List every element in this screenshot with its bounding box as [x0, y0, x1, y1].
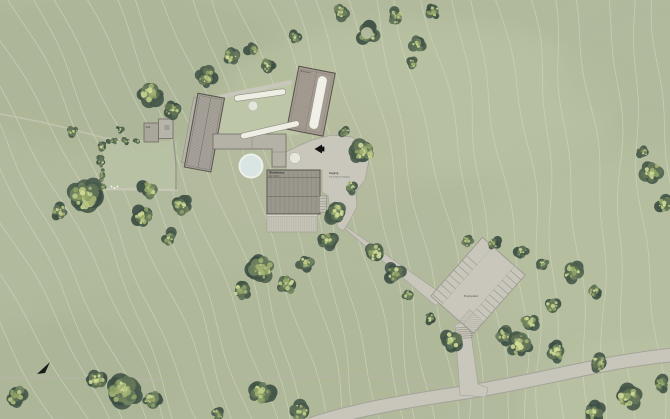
garden-bench-dot: [117, 186, 119, 188]
tree-blob: [429, 13, 432, 16]
tree-blob: [128, 140, 130, 142]
tree-blob: [252, 47, 255, 50]
tree-blob: [10, 390, 13, 393]
tree-blob: [322, 235, 325, 238]
tree-blob: [590, 291, 592, 293]
tree-blob: [577, 270, 580, 273]
tree-blob: [570, 275, 573, 278]
tree-blob: [304, 259, 307, 262]
tree-blob: [152, 89, 155, 92]
tree-blob: [11, 400, 15, 404]
tree-blob: [112, 141, 113, 142]
tree-blob: [408, 293, 411, 296]
tree-blob: [73, 187, 79, 193]
tree-blob: [259, 389, 264, 394]
tree-blob: [138, 142, 139, 143]
tree-blob: [592, 410, 596, 414]
tree-blob: [151, 404, 155, 408]
tree-blob: [453, 337, 456, 340]
tree-blob: [514, 338, 517, 341]
tree-blob: [501, 331, 505, 335]
stable-label: Stall: [146, 126, 151, 129]
tree-blob: [662, 201, 666, 205]
tree-blob: [602, 366, 604, 368]
tree-blob: [644, 149, 646, 151]
tree-blob: [221, 416, 222, 417]
tree-blob: [296, 415, 299, 418]
tree-blob: [141, 215, 145, 219]
tree-blob: [519, 254, 520, 255]
tree-blob: [351, 185, 354, 188]
tree-blob: [326, 234, 330, 238]
tree-blob: [394, 16, 396, 18]
tree-blob: [115, 139, 116, 140]
tree-blob: [553, 307, 557, 311]
tree-blob: [555, 305, 557, 307]
tree-blob: [652, 175, 654, 177]
tree-blob: [555, 301, 558, 304]
tree-blob: [511, 344, 516, 349]
tree-blob: [258, 258, 263, 263]
tree-blob: [15, 393, 20, 398]
tree-blob: [570, 268, 573, 271]
tree-blob: [102, 148, 104, 150]
tree-blob: [59, 212, 63, 216]
tree-blob: [495, 245, 497, 247]
tree-blob: [113, 139, 115, 141]
tree-blob: [97, 379, 99, 381]
tree-blob: [254, 388, 259, 393]
tree-blob: [393, 13, 395, 15]
tree-blob: [553, 346, 555, 348]
house-label-title: Wohnhaus: [269, 171, 285, 175]
tree-blob: [57, 208, 59, 210]
tree-blob: [363, 146, 367, 150]
site-plan-svg: Scheune Stall: [0, 0, 670, 419]
tree-blob: [329, 241, 331, 243]
tree-blob: [101, 147, 103, 149]
tree-blob: [308, 262, 310, 264]
tree-blob: [207, 78, 211, 82]
tree-blob: [166, 235, 167, 236]
tree-blob: [346, 130, 347, 131]
tree-blob: [266, 390, 269, 393]
tree-blob: [119, 129, 121, 131]
tree-blob: [119, 125, 120, 126]
tree-blob: [234, 292, 237, 295]
tree-blob: [396, 21, 398, 23]
tree-blob: [100, 164, 103, 167]
tree-blob: [144, 400, 146, 402]
tree-blob: [137, 140, 138, 141]
tree-blob: [59, 209, 61, 211]
tree-blob: [303, 412, 307, 416]
tree-blob: [411, 293, 413, 295]
pool-circle: [241, 156, 262, 177]
tree-blob: [114, 397, 119, 402]
tree-blob: [542, 263, 545, 266]
tree-blob: [103, 162, 104, 163]
tree-blob: [618, 393, 624, 399]
tree-blob: [296, 405, 298, 407]
tree-blob: [489, 243, 491, 245]
tree-blob: [172, 109, 174, 111]
tree-blob: [146, 97, 152, 103]
tree-blob: [341, 7, 343, 9]
tree-blob: [659, 205, 661, 207]
tree-blob: [264, 68, 266, 70]
tree-blob: [395, 15, 397, 17]
tree-blob: [147, 192, 150, 195]
tree-blob: [259, 264, 261, 266]
tree-blob: [238, 289, 241, 292]
tree-blob: [359, 156, 361, 158]
tree-blob: [642, 152, 644, 154]
tree-blob: [432, 318, 434, 320]
tree-blob: [80, 190, 85, 195]
tree-blob: [267, 65, 269, 67]
tree-blob: [98, 161, 100, 163]
tree-blob: [116, 141, 117, 142]
tree-blob: [255, 270, 257, 272]
tree-blob: [407, 290, 408, 291]
tree-blob: [294, 34, 297, 37]
tree-blob: [657, 379, 660, 382]
tree-blob: [395, 271, 399, 275]
tree-blob: [216, 411, 218, 413]
tree-blob: [166, 111, 168, 113]
tree-blob: [109, 386, 116, 393]
tree-blob: [628, 401, 631, 404]
site-plan-canvas: Scheune Stall: [0, 0, 670, 419]
tree-blob: [598, 367, 601, 370]
tree-blob: [229, 52, 231, 54]
tree-blob: [85, 196, 91, 202]
tree-blob: [170, 238, 172, 240]
tree-blob: [300, 411, 302, 413]
tree-blob: [517, 253, 521, 257]
tree-blob: [464, 240, 466, 242]
tree-blob: [145, 89, 148, 92]
tree-blob: [659, 386, 661, 388]
tree-blob: [94, 375, 97, 378]
tree-blob: [447, 339, 452, 344]
tree-blob: [306, 265, 308, 267]
tree-blob: [642, 151, 643, 152]
house-terrace-decking: [267, 216, 317, 232]
tree-blob: [601, 359, 603, 361]
tree-blob: [431, 6, 434, 9]
tree-blob: [165, 239, 169, 243]
tree-blob: [416, 43, 418, 45]
entry-label-line1: Zugang: [329, 171, 339, 175]
tree-blob: [556, 347, 560, 351]
tree-blob: [503, 335, 505, 337]
tree-blob: [412, 60, 415, 63]
tree-blob: [243, 286, 247, 290]
tree-blob: [411, 63, 413, 65]
garden-bench-dot: [114, 187, 116, 189]
tree-blob: [655, 164, 659, 168]
tree-blob: [410, 66, 412, 68]
tree-blob: [371, 257, 374, 260]
tree-blob: [199, 78, 201, 80]
tree-blob: [175, 204, 179, 208]
tree-blob: [325, 238, 328, 241]
tree-blob: [593, 358, 596, 361]
tree-blob: [429, 317, 431, 319]
tree-blob: [183, 207, 185, 209]
tree-blob: [329, 238, 332, 241]
tree-blob: [104, 188, 106, 190]
tree-blob: [555, 352, 559, 356]
tree-blob: [433, 10, 436, 13]
tree-blob: [660, 379, 663, 382]
tree-blob: [300, 405, 303, 408]
tree-blob: [53, 210, 56, 213]
tree-blob: [661, 206, 664, 209]
garden-bench-dot: [111, 186, 113, 188]
tree-blob: [520, 339, 523, 342]
tree-blob: [359, 150, 363, 154]
tree-blob: [144, 208, 148, 212]
tree-blob: [520, 335, 522, 337]
tree-blob: [59, 216, 61, 218]
tree-blob: [102, 175, 103, 176]
tree-blob: [172, 112, 177, 117]
tree-blob: [285, 286, 290, 291]
tree-blob: [367, 144, 373, 150]
tree-blob: [371, 37, 374, 40]
tree-blob: [278, 282, 282, 286]
tree-blob: [519, 343, 522, 346]
tree-blob: [102, 180, 103, 181]
tree-blob: [493, 242, 495, 244]
tree-blob: [61, 206, 64, 209]
tree-blob: [431, 314, 433, 316]
tree-blob: [542, 262, 543, 263]
tree-blob: [99, 383, 101, 385]
tree-blob: [559, 345, 561, 347]
tree-blob: [70, 132, 72, 134]
tree-blob: [339, 7, 342, 10]
tree-blob: [544, 259, 546, 261]
tree-blob: [121, 391, 124, 394]
tree-blob: [593, 290, 595, 292]
tree-blob: [76, 130, 77, 131]
tree-blob: [296, 410, 300, 414]
tree-blob: [379, 256, 381, 258]
tree-blob: [98, 374, 101, 377]
tree-blob: [101, 186, 103, 188]
tree-blob: [213, 417, 214, 418]
tree-blob: [102, 145, 104, 147]
tree-blob: [99, 178, 104, 183]
tree-blob: [126, 141, 127, 142]
tree-ring-hole: [361, 27, 373, 39]
tree-blob: [235, 56, 237, 58]
tree-blob: [521, 254, 525, 258]
parking-label: Parkplatz: [464, 294, 479, 298]
tree-blob: [292, 33, 294, 35]
tree-blob: [135, 215, 138, 218]
tree-blob: [598, 361, 601, 364]
tree-blob: [596, 292, 597, 293]
tree-blob: [397, 16, 400, 19]
tree-blob: [266, 70, 268, 72]
tree-blob: [145, 188, 149, 192]
tree-blob: [374, 250, 378, 254]
tree-blob: [99, 172, 101, 174]
tree-blob: [168, 233, 171, 236]
tree-blob: [120, 382, 123, 385]
tree-blob: [499, 336, 502, 339]
tree-blob: [333, 209, 337, 213]
tree-blob: [595, 287, 597, 289]
tree-blob: [243, 290, 247, 294]
tree-blob: [169, 236, 170, 237]
tree-blob: [88, 187, 92, 191]
tree-blob: [591, 293, 594, 296]
house-label-sub: EG ±0.00: [269, 176, 279, 178]
entrance-arrow-base: [322, 147, 325, 152]
tree-blob: [142, 92, 148, 98]
tree-blob: [355, 150, 359, 154]
tree-blob: [588, 409, 592, 413]
tree-blob: [466, 240, 469, 243]
tree-blob: [102, 163, 103, 164]
tree-blob: [153, 397, 155, 399]
tree-blob: [348, 184, 350, 186]
tree-blob: [292, 37, 294, 39]
tree-blob: [175, 109, 178, 112]
tree-blob: [550, 351, 553, 354]
tree-blob: [124, 140, 126, 142]
tree-blob: [345, 132, 348, 135]
tree-blob: [631, 392, 635, 396]
tree-blob: [343, 130, 345, 132]
tree-blob: [394, 267, 398, 271]
tree-blob: [515, 352, 518, 355]
tree-blob: [491, 241, 493, 243]
tree-blob: [650, 168, 654, 172]
tree-blob: [546, 302, 549, 305]
tree-blob: [294, 39, 296, 41]
tree-blob: [626, 393, 631, 398]
tree-blob: [147, 214, 151, 218]
tree-blob: [525, 339, 529, 343]
tree-blob: [645, 154, 647, 156]
tree-blob: [99, 156, 104, 161]
tree-blob: [113, 141, 116, 144]
tree-blob: [399, 17, 401, 19]
tree-blob: [529, 320, 533, 324]
tree-blob: [168, 242, 170, 244]
tree-blob: [217, 414, 220, 417]
tree-blob: [301, 258, 304, 261]
tree-blob: [131, 396, 135, 400]
tree-blob: [123, 386, 128, 391]
tree-blob: [406, 294, 408, 296]
tree-blob: [368, 251, 372, 255]
round-lawn-feature: [290, 153, 301, 164]
tree-blob: [213, 410, 216, 413]
tree-blob: [209, 71, 213, 75]
tree-blob: [167, 234, 168, 235]
tree-blob: [144, 182, 148, 186]
tree-blob: [102, 171, 104, 173]
tree-blob: [454, 343, 458, 347]
tree-blob: [289, 281, 293, 285]
tree-blob: [404, 296, 406, 298]
tree-blob: [567, 273, 569, 275]
tree-blob: [551, 304, 554, 307]
tree-blob: [344, 134, 345, 135]
tree-blob: [410, 60, 412, 62]
tree-blob: [226, 50, 230, 54]
tree-blob: [172, 233, 173, 234]
tree-blob: [121, 128, 122, 129]
tree-blob: [168, 112, 170, 114]
tree-blob: [147, 394, 151, 398]
tree-blob: [394, 21, 396, 23]
tree-blob: [326, 243, 328, 245]
tree-blob: [378, 248, 380, 250]
outbuilding-detail: [165, 125, 170, 130]
tree-blob: [590, 289, 593, 292]
tree-blob: [72, 194, 77, 199]
tree-blob: [203, 77, 205, 79]
tree-blob: [464, 237, 467, 240]
entry-label-line2: mit schönem Vorplatz: [329, 176, 350, 179]
tree-blob: [262, 276, 265, 279]
tree-blob: [412, 43, 414, 45]
tree-blob: [428, 318, 429, 319]
tree-blob: [340, 212, 344, 216]
tree-blob: [284, 278, 288, 282]
tree-blob: [77, 201, 81, 205]
tree-blob: [112, 139, 113, 140]
tree-blob: [261, 398, 265, 402]
tree-blob: [521, 251, 523, 253]
tree-blob: [436, 8, 438, 10]
tree-blob: [428, 319, 431, 322]
tree-blob: [91, 196, 97, 202]
tree-blob: [283, 284, 286, 287]
tree-blob: [299, 36, 301, 38]
tree-blob: [520, 250, 522, 252]
tree-blob: [226, 56, 230, 60]
tree-blob: [338, 13, 342, 17]
tree-blob: [267, 262, 272, 267]
tree-blob: [267, 68, 269, 70]
tree-blob: [172, 104, 174, 106]
tree-blob: [447, 332, 452, 337]
tree-blob: [183, 204, 186, 207]
tree-blob: [72, 130, 75, 133]
tree-blob: [358, 143, 363, 148]
tree-blob: [180, 210, 184, 214]
tree-blob: [367, 151, 373, 157]
tree-blob: [265, 270, 269, 274]
tree-blob: [89, 192, 93, 196]
tree-blob: [525, 249, 527, 251]
tree-blob: [119, 131, 120, 132]
tree-blob: [525, 317, 529, 321]
tree-blob: [374, 245, 378, 249]
tree-blob: [99, 142, 102, 145]
tree-blob: [350, 182, 352, 184]
